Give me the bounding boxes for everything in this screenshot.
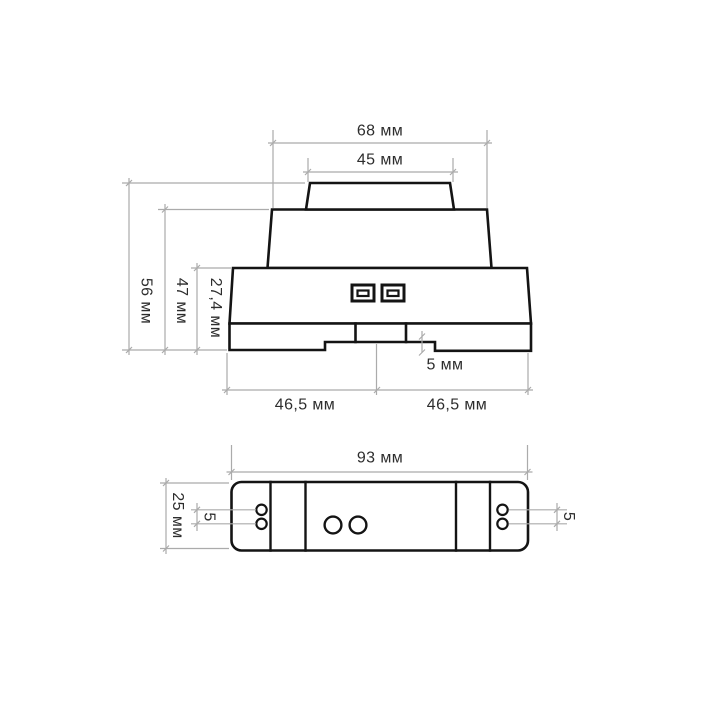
dim-label-height-without-cap: 47 мм xyxy=(173,278,190,324)
dim-label-width-top: 68 мм xyxy=(357,123,403,140)
dim-label-width-cap: 45 мм xyxy=(357,152,403,169)
dim-label-base-left-half: 46,5 мм xyxy=(275,397,335,414)
center-hole-left xyxy=(325,517,342,534)
dim-label-length: 93 мм xyxy=(357,450,403,467)
enclosure-outline xyxy=(232,482,529,551)
dim-label-height-total: 56 мм xyxy=(138,278,155,324)
top-view: 93 мм 25 мм 5 5 xyxy=(160,445,577,554)
terminal-hole-left-top xyxy=(256,505,266,515)
terminal-hole-left-bottom xyxy=(256,519,266,529)
dim-label-notch-depth: 5 мм xyxy=(427,357,464,374)
center-hole-right xyxy=(350,517,367,534)
dim-label-terminal-spacing-right: 5 xyxy=(560,512,577,521)
top-view-outline xyxy=(232,482,529,551)
dim-label-base-right-half: 46,5 мм xyxy=(427,397,487,414)
terminal-window-left-inner xyxy=(358,291,369,297)
dim-label-height-base: 27,4 мм xyxy=(207,278,224,338)
terminal-hole-right-top xyxy=(497,505,507,515)
bottom-flange-outline xyxy=(230,324,532,351)
front-view-outline xyxy=(230,183,532,351)
terminal-window-right-inner xyxy=(388,291,399,297)
dim-label-terminal-spacing-left: 5 xyxy=(201,512,218,521)
dim-label-width: 25 мм xyxy=(169,492,186,538)
mid-section-outline xyxy=(268,210,492,269)
cap-outline xyxy=(306,183,454,210)
front-view: 68 мм 45 мм 56 мм 47 мм 27,4 мм 5 мм 46,… xyxy=(122,123,533,414)
body-outline xyxy=(230,268,532,324)
terminal-hole-right-bottom xyxy=(497,519,507,529)
technical-drawing: 68 мм 45 мм 56 мм 47 мм 27,4 мм 5 мм 46,… xyxy=(0,0,720,720)
